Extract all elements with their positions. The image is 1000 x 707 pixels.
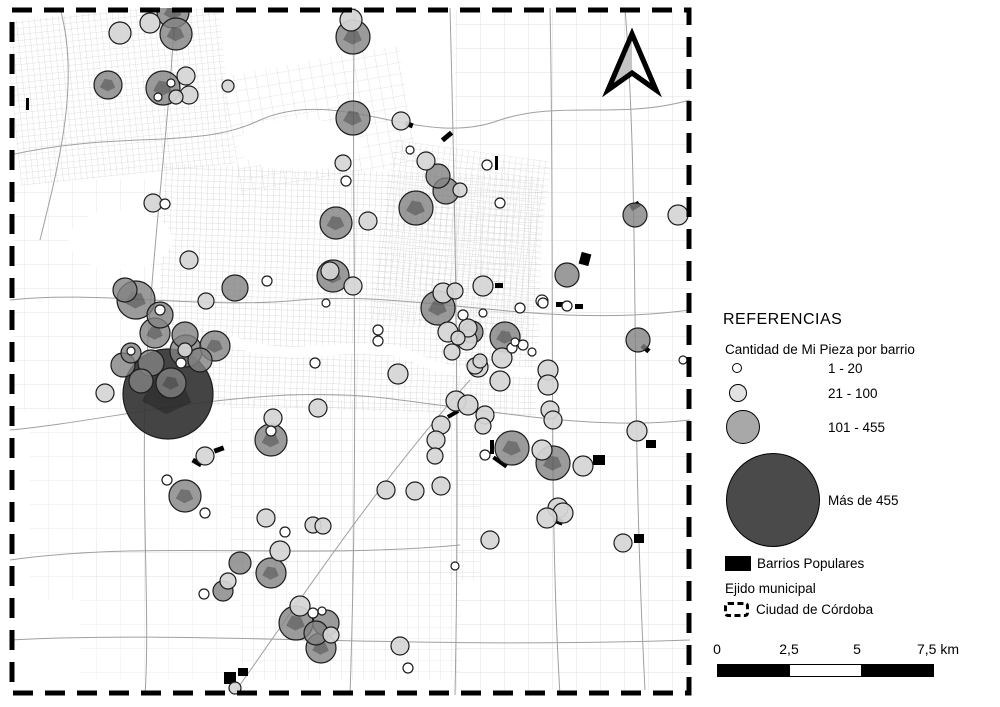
map-symbol: [377, 481, 395, 499]
barrio-popular-polygon: [441, 131, 453, 143]
legend-label-21-100: 21 - 100: [828, 386, 878, 401]
map-symbol: [113, 278, 137, 302]
map-symbol: [475, 418, 491, 434]
barrio-popular-polygon: [634, 534, 644, 543]
scale-bar: [717, 664, 934, 677]
map-symbol: [627, 421, 647, 441]
map-symbol: [162, 475, 172, 485]
barrio-popular-polygon: [490, 440, 494, 454]
map-symbol: [309, 399, 327, 417]
map-symbol: [555, 263, 579, 287]
map-symbol: [406, 482, 424, 500]
barrios-populares-swatch: [725, 556, 751, 571]
map-symbol: [490, 371, 510, 391]
map-symbol: [544, 411, 562, 429]
map-symbol: [528, 348, 536, 356]
map-symbol: [257, 509, 275, 527]
legend-symbol-1-20: [732, 363, 742, 373]
map-symbol: [169, 90, 183, 104]
map-symbol: [222, 80, 234, 92]
map-symbol: [335, 155, 351, 171]
map-symbol: [403, 663, 413, 673]
map-symbol: [176, 358, 186, 368]
map-symbol: [427, 448, 443, 464]
map-symbol: [479, 309, 487, 317]
ejido-dashed-icon: [724, 602, 749, 617]
map-symbol: [495, 198, 505, 208]
map-symbol: [427, 431, 445, 449]
map-symbol: [229, 552, 251, 574]
barrio-popular-polygon: [646, 440, 656, 448]
legend-symbol-mas-455: [726, 453, 820, 547]
map-symbol: [432, 477, 450, 495]
scale-label-0: 0: [713, 641, 721, 657]
map-symbol: [280, 527, 290, 537]
barrio-popular-polygon: [575, 304, 583, 309]
map-symbol: [262, 276, 272, 286]
map-symbol: [344, 277, 362, 295]
map-symbol: [177, 67, 195, 85]
scale-label-5: 5: [853, 641, 861, 657]
map-symbol: [451, 331, 465, 345]
legend-label-mas-455: Más de 455: [828, 493, 899, 508]
legend-label-101-455: 101 - 455: [828, 420, 885, 435]
map-symbol: [444, 344, 460, 360]
map-symbol: [127, 347, 135, 355]
map-symbol: [458, 395, 478, 415]
map-symbol: [668, 205, 688, 225]
figure: REFERENCIAS Cantidad de Mi Pieza por bar…: [0, 0, 1000, 707]
ejido-municipal-title: Ejido municipal: [725, 581, 816, 596]
map-symbol: [482, 160, 492, 170]
map-symbol: [417, 152, 435, 170]
map-symbol: [473, 276, 493, 296]
map-symbol: [458, 310, 468, 320]
map-symbol: [266, 426, 276, 436]
map-symbol: [562, 301, 572, 311]
barrio-popular-polygon: [593, 455, 605, 465]
map-symbol: [538, 375, 558, 395]
scale-bar-segment-3: [861, 665, 933, 676]
map-symbol: [614, 534, 632, 552]
legend-title: REFERENCIAS: [723, 311, 842, 329]
scale-bar-segment-1: [718, 665, 790, 676]
scale-label-7-5-km: 7,5 km: [917, 641, 959, 657]
map-symbol: [264, 409, 282, 427]
map-symbol: [290, 596, 310, 616]
map-symbol: [537, 508, 557, 528]
barrio-popular-polygon: [495, 283, 503, 288]
map-symbol: [623, 203, 647, 227]
map-symbol: [391, 637, 409, 655]
map-symbol: [323, 627, 339, 643]
map-symbol: [532, 440, 552, 460]
map-symbol: [392, 112, 410, 130]
map-symbol: [322, 299, 330, 307]
map-symbol: [538, 298, 548, 308]
map-symbol: [200, 508, 210, 518]
map-symbol: [511, 338, 519, 346]
map-symbol: [373, 325, 383, 335]
legend-subtitle: Cantidad de Mi Pieza por barrio: [725, 342, 915, 357]
map-symbol: [155, 305, 165, 315]
map-symbol: [373, 336, 383, 346]
map-symbol: [129, 369, 153, 393]
map-symbol: [447, 283, 463, 299]
scale-bar-segment-2: [790, 665, 862, 676]
map-symbol: [308, 608, 318, 618]
map-symbol: [406, 146, 414, 154]
map-symbol: [451, 562, 459, 570]
map-symbol: [359, 212, 377, 230]
legend-symbol-21-100: [729, 384, 747, 402]
map-symbol: [626, 328, 650, 352]
map-symbol: [220, 573, 236, 589]
barrio-popular-polygon: [495, 156, 498, 170]
barrio-popular-polygon: [26, 98, 29, 110]
map-symbol: [679, 356, 687, 364]
map-symbol: [473, 354, 487, 368]
map-symbol: [515, 303, 525, 313]
map-symbol: [198, 293, 214, 309]
map-symbol: [321, 262, 339, 280]
map-symbol: [341, 176, 351, 186]
map-symbol: [109, 22, 131, 44]
map-symbol: [154, 93, 162, 101]
legend-label-1-20: 1 - 20: [828, 361, 863, 376]
map-canvas: [0, 0, 700, 707]
map-symbol: [315, 518, 331, 534]
map-symbol: [199, 589, 209, 599]
map-symbol: [96, 384, 114, 402]
map-symbol: [480, 450, 490, 460]
map-symbol: [167, 79, 175, 87]
map-symbol: [453, 183, 467, 197]
map-symbol: [140, 13, 160, 33]
ejido-municipal-label: Ciudad de Córdoba: [756, 602, 873, 617]
map-symbol: [270, 541, 290, 561]
map-symbol: [178, 343, 192, 357]
map-symbol: [388, 364, 408, 384]
barrios-populares-label: Barrios Populares: [757, 556, 864, 571]
map-symbol: [196, 447, 214, 465]
barrio-popular-polygon: [228, 697, 240, 705]
map-symbol: [318, 607, 326, 615]
legend-symbol-101-455: [726, 410, 760, 444]
map-symbol: [573, 456, 593, 476]
map-symbol: [481, 531, 499, 549]
map-symbol: [222, 275, 248, 301]
map-symbol: [160, 199, 170, 209]
barrio-popular-polygon: [238, 668, 248, 676]
map-symbol: [144, 194, 162, 212]
map-symbol: [310, 358, 320, 368]
map-symbol: [180, 251, 198, 269]
scale-label-2-5: 2,5: [779, 641, 798, 657]
